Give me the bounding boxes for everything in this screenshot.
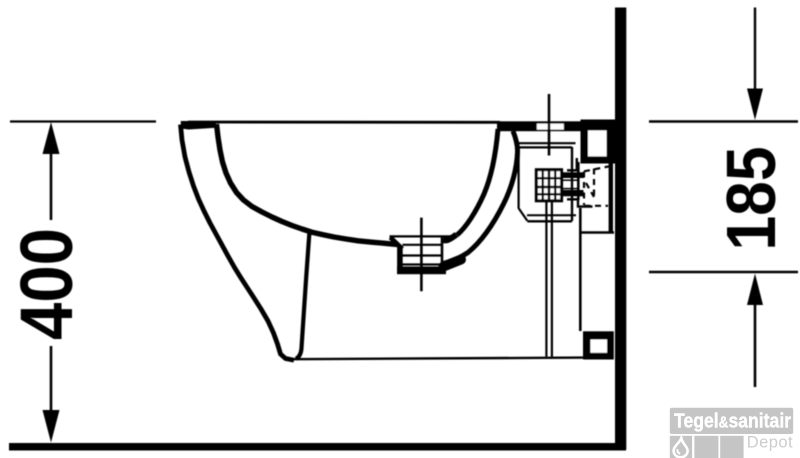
svg-text:185: 185 [712,147,790,251]
svg-text:400: 400 [5,228,88,340]
svg-text:Tegel&sanitair: Tegel&sanitair [674,410,792,432]
svg-text:Depot: Depot [747,434,793,452]
